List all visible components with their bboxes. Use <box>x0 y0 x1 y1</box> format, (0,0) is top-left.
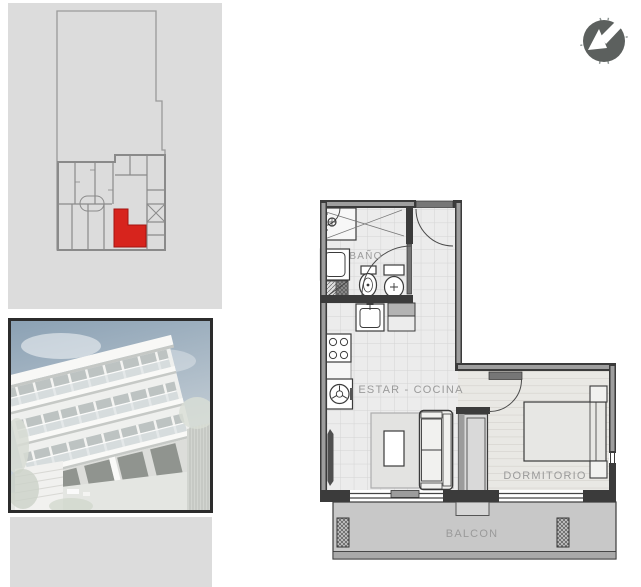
wardrobe <box>456 407 490 497</box>
kitchen-sink-icon <box>356 301 384 331</box>
balcony-label: BALCON <box>446 528 498 540</box>
balcony-planter <box>456 502 489 516</box>
north-arrow-icon <box>580 17 628 65</box>
stove-icon <box>326 334 351 362</box>
balcony-column-right <box>557 518 569 547</box>
building-photo-frame <box>8 318 213 513</box>
sofa <box>420 411 453 490</box>
bedroom-label: DORMITORIO <box>503 470 586 482</box>
tv-icon <box>328 429 334 486</box>
balcony-slider-window <box>350 491 443 499</box>
bathroom-label: BAÑO <box>349 249 382 262</box>
bedroom-balcony-window <box>499 494 583 499</box>
coffee-table <box>384 431 404 466</box>
bedroom-side-window <box>611 453 615 463</box>
balcony-parapet <box>333 552 616 560</box>
listing-image: BAÑO ESTAR - COCINA DORMITORIO BALCON <box>0 0 641 587</box>
left-panel-footer <box>10 517 212 587</box>
bed <box>524 402 606 461</box>
right-fence <box>187 423 210 510</box>
nightstand-bottom <box>590 461 607 478</box>
site-key-plan <box>0 0 222 312</box>
balcony-column-left <box>337 518 349 547</box>
nightstand-top <box>590 386 607 402</box>
washer-icon <box>327 379 354 409</box>
building-photo <box>11 321 210 510</box>
toilet-icon <box>384 265 404 298</box>
apartment-floor-plan: BAÑO ESTAR - COCINA DORMITORIO BALCON <box>300 190 641 587</box>
living-kitchen-label: ESTAR - COCINA <box>358 384 463 396</box>
